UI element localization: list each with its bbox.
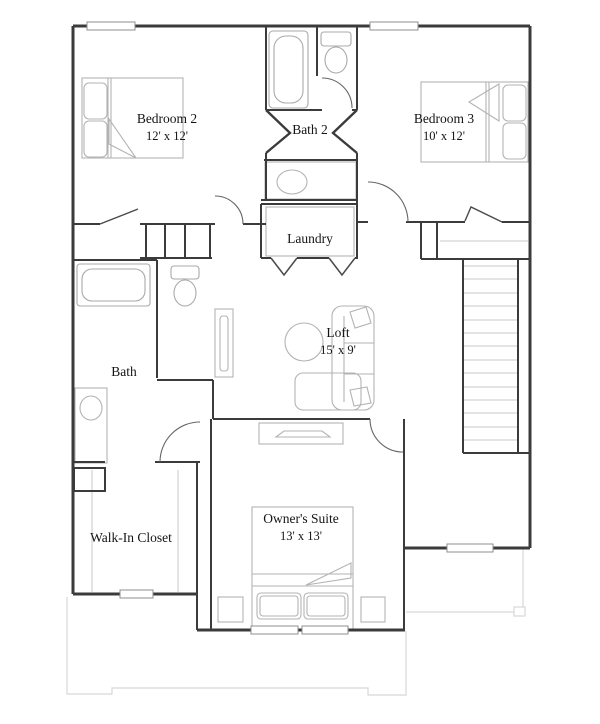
staircase xyxy=(464,266,517,440)
vanity-sink-bath2 xyxy=(265,162,356,199)
dresser-owners-suite xyxy=(259,423,343,444)
room-dims: 13' x 13' xyxy=(263,528,339,545)
room-name: Owner's Suite xyxy=(263,510,339,528)
floor-plan: Bedroom 2 12' x 12' Bath 2 Bedroom 3 10'… xyxy=(0,0,600,724)
room-name: Bedroom 3 xyxy=(414,110,474,128)
vanity-sink-bath xyxy=(75,388,107,463)
room-label-owners-suite: Owner's Suite 13' x 13' xyxy=(263,510,339,544)
room-label-walk-in-closet: Walk-In Closet xyxy=(90,529,172,547)
room-dims: 15' x 9' xyxy=(320,342,356,359)
bathtub-bath xyxy=(77,264,150,306)
floor-plan-drawing xyxy=(0,0,600,724)
room-name: Walk-In Closet xyxy=(90,529,172,547)
linen-cabinet-loft xyxy=(215,309,233,377)
room-name: Bedroom 2 xyxy=(137,110,197,128)
first-floor-outline xyxy=(67,549,525,695)
bifold-doors-laundry xyxy=(271,258,355,275)
room-label-bedroom-2: Bedroom 2 12' x 12' xyxy=(137,110,197,144)
room-name: Laundry xyxy=(287,230,333,248)
room-name: Bath 2 xyxy=(292,121,328,139)
nightstand-left xyxy=(218,597,243,622)
round-table-loft xyxy=(285,323,323,361)
room-label-bedroom-3: Bedroom 3 10' x 12' xyxy=(414,110,474,144)
room-label-laundry: Laundry xyxy=(287,230,333,248)
room-dims: 10' x 12' xyxy=(414,128,474,145)
toilet-bath2 xyxy=(321,32,351,73)
toilet-bath xyxy=(171,266,199,306)
room-label-bath: Bath xyxy=(111,363,137,381)
built-in-box-closet xyxy=(74,468,105,491)
room-label-loft: Loft 15' x 9' xyxy=(320,324,356,358)
nightstand-right xyxy=(361,597,385,622)
room-dims: 12' x 12' xyxy=(137,128,197,145)
room-name: Bath xyxy=(111,363,137,381)
room-name: Loft xyxy=(320,324,356,342)
room-label-bath-2: Bath 2 xyxy=(292,121,328,139)
bathtub-bath2 xyxy=(269,31,308,108)
